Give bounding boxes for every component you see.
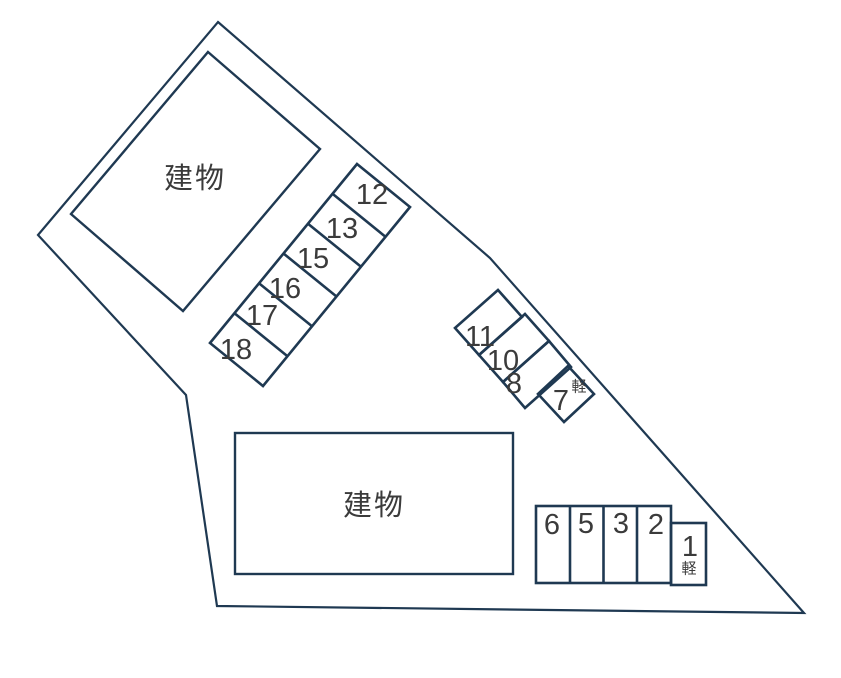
site-plan-svg: 建物 建物 12 13 15 16 17 18 11 10 8 7 軽 6 5 xyxy=(0,0,841,678)
space-7-kei-mark: 軽 xyxy=(571,378,586,395)
space-label-13: 13 xyxy=(326,213,358,245)
space-label-2: 2 xyxy=(648,509,664,541)
space-1-kei-mark: 軽 xyxy=(681,560,696,577)
space-label-3: 3 xyxy=(613,508,629,540)
space-label-8: 8 xyxy=(506,368,522,400)
parking-site-plan: 建物 建物 12 13 15 16 17 18 11 10 8 7 軽 6 5 xyxy=(0,0,841,678)
space-label-5: 5 xyxy=(578,508,594,540)
building-upper-label: 建物 xyxy=(164,162,226,195)
space-label-7: 7 xyxy=(553,385,569,417)
space-label-6: 6 xyxy=(544,509,560,541)
space-label-17: 17 xyxy=(246,300,278,332)
space-label-1: 1 xyxy=(682,531,698,563)
space-label-15: 15 xyxy=(297,243,329,275)
site-boundary xyxy=(38,22,804,613)
space-label-12: 12 xyxy=(356,179,388,211)
building-lower-label: 建物 xyxy=(343,489,405,522)
space-label-18: 18 xyxy=(220,334,252,366)
